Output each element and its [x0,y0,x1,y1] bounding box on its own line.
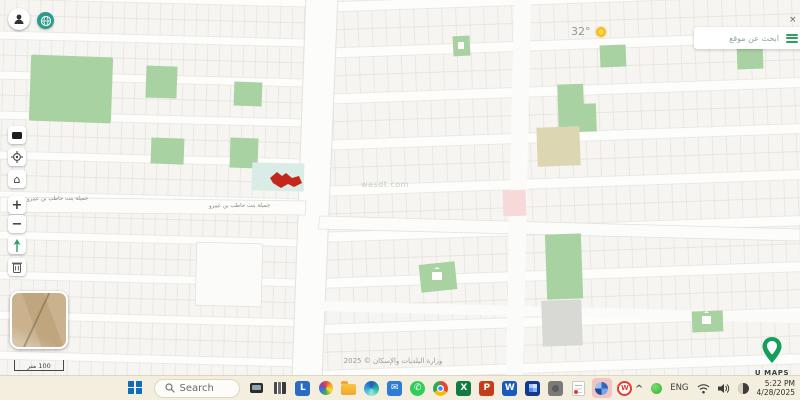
temperature-label: 32° [571,25,591,38]
word-icon: W [502,381,517,396]
tray-green-status-icon[interactable] [651,383,662,394]
taskbar-icon-mail[interactable]: ✉ [385,378,405,398]
taskbar-icon-whatsapp[interactable]: ✆ [408,378,428,398]
documents-icon [274,382,286,394]
taskbar-icon-documents[interactable] [270,378,290,398]
close-icon[interactable]: × [789,15,797,25]
legend-button[interactable] [8,126,26,144]
globe-icon [40,15,52,27]
person-icon [13,13,25,25]
whatsapp-icon: ✆ [410,381,425,396]
empty-block [195,242,263,307]
scale-label: 100 متر [27,363,51,371]
locate-icon [11,151,23,163]
taskbar-search[interactable]: Search [154,379,240,398]
wifi-icon[interactable] [697,383,710,394]
active-app-pinwheel-icon [595,382,608,395]
laptop-icon [250,383,263,393]
volume-icon[interactable] [718,383,730,394]
taskbar-icon-laptop[interactable] [247,378,267,398]
basemap-thumbnail[interactable] [10,291,68,349]
watermark: wasdt.com [361,180,409,189]
weather-widget: 32° [571,25,607,38]
mail-envelope-icon: ✉ [387,381,402,396]
taskbar-icon-photos[interactable] [316,378,336,398]
language-globe-button[interactable] [37,12,54,29]
taskbar-icon-notes[interactable] [569,378,589,398]
copyright-text: وزارة البلديات والإسكان © 2025 [318,357,468,365]
menu-icon[interactable] [786,34,798,43]
notes-card-icon [572,381,585,396]
taskbar-icon-chrome[interactable] [431,378,451,398]
language-indicator[interactable]: ENG [670,383,688,393]
park-large-topleft [29,55,113,124]
libreoffice-icon: L [295,381,310,396]
sun-icon [595,26,607,38]
start-button[interactable] [128,381,142,396]
powerpoint-icon: P [479,381,494,396]
taskbar-icon-wps-office[interactable]: W [615,378,635,398]
user-account-button[interactable] [8,8,30,30]
north-arrow-button[interactable] [8,236,26,254]
edge-browser-icon [364,381,379,396]
wps-office-icon: W [617,381,632,396]
taskbar-icon-libreoffice[interactable]: L [293,378,313,398]
clock[interactable]: 5:22 PM 4/28/2025 [757,379,795,397]
screen: جميلة بنت حاطب بن عمرو جميلة بنت حاطب بن… [0,0,800,400]
umaps-logo: U MAPS [746,336,798,377]
street-label: جميلة بنت حاطب بن عمرو [27,196,88,203]
trash-icon [12,261,22,273]
tray-chevron-icon[interactable]: ^ [635,384,643,395]
map-canvas[interactable]: جميلة بنت حاطب بن عمرو جميلة بنت حاطب بن… [0,0,800,375]
plus-icon: + [12,199,23,212]
taskbar-apps: L ✉ ✆ X P W W [247,378,635,398]
taskbar-icon-blue-app[interactable] [523,378,543,398]
search-icon [165,383,175,393]
legend-icon [12,132,22,139]
home-icon: ⌂ [14,174,21,185]
home-button[interactable]: ⌂ [8,170,26,188]
gray-app-icon [548,381,563,396]
blue-grid-app-icon [525,381,540,396]
gray-parcel [541,299,583,346]
taskbar: Search L ✉ ✆ X P W W ^ ENG [0,375,800,400]
system-tray: ^ ENG 5:22 PM 4/28/2025 [635,379,795,397]
building-icon [458,42,464,49]
street-label: جميلة بنت حاطب بن عمرو [209,203,270,210]
scale-bar: 100 متر [14,360,64,371]
pink-parcel [503,190,527,217]
taskbar-icon-edge[interactable] [362,378,382,398]
taskbar-icon-word[interactable]: W [500,378,520,398]
taskbar-icon-powerpoint[interactable]: P [477,378,497,398]
north-arrow-icon [12,239,22,252]
chrome-icon [433,381,448,396]
tray-time: 5:22 PM [757,379,795,388]
taskbar-icon-file-explorer[interactable] [339,378,359,398]
search-placeholder: ابحث عن موقع [729,34,779,43]
zoom-in-button[interactable]: + [8,196,26,214]
trash-button[interactable] [8,258,26,276]
taskbar-icon-gray-app[interactable] [546,378,566,398]
location-search-input[interactable]: ابحث عن موقع [694,27,800,49]
tray-date: 4/28/2025 [757,388,795,397]
folder-icon [341,384,356,395]
taskbar-icon-active-app[interactable] [592,378,612,398]
khaki-parcel [536,126,580,166]
photos-pinwheel-icon [319,381,333,395]
battery-saver-icon[interactable] [738,383,749,394]
taskbar-search-placeholder: Search [180,383,214,394]
zoom-out-button[interactable]: − [8,215,26,233]
minus-icon: − [12,218,23,231]
excel-icon: X [456,381,471,396]
taskbar-icon-excel[interactable]: X [454,378,474,398]
locate-button[interactable] [8,148,26,166]
map-pin-icon [760,336,784,364]
